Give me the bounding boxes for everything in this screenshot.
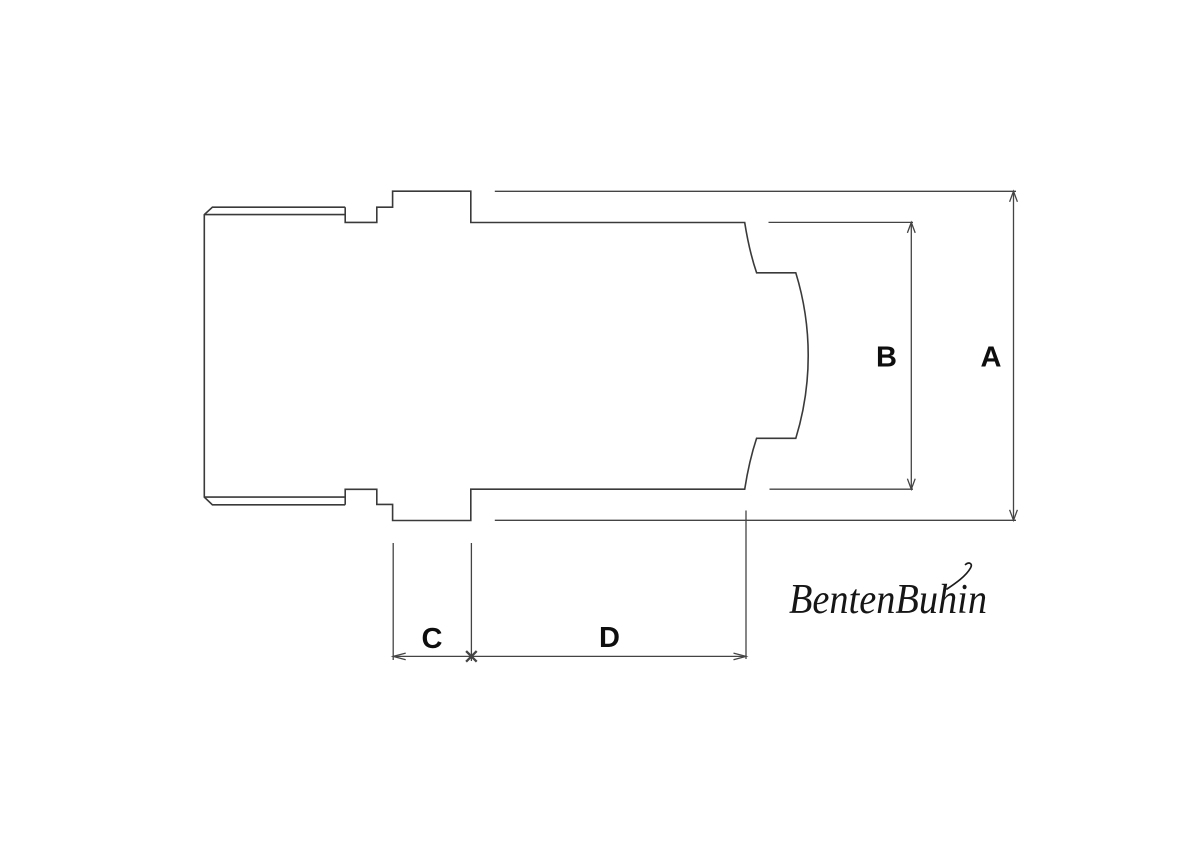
svg-text:D: D (599, 622, 620, 654)
svg-text:B: B (876, 342, 897, 374)
svg-text:A: A (981, 342, 1002, 374)
svg-text:C: C (422, 623, 443, 655)
svg-text:BentenBuhin: BentenBuhin (789, 577, 987, 623)
